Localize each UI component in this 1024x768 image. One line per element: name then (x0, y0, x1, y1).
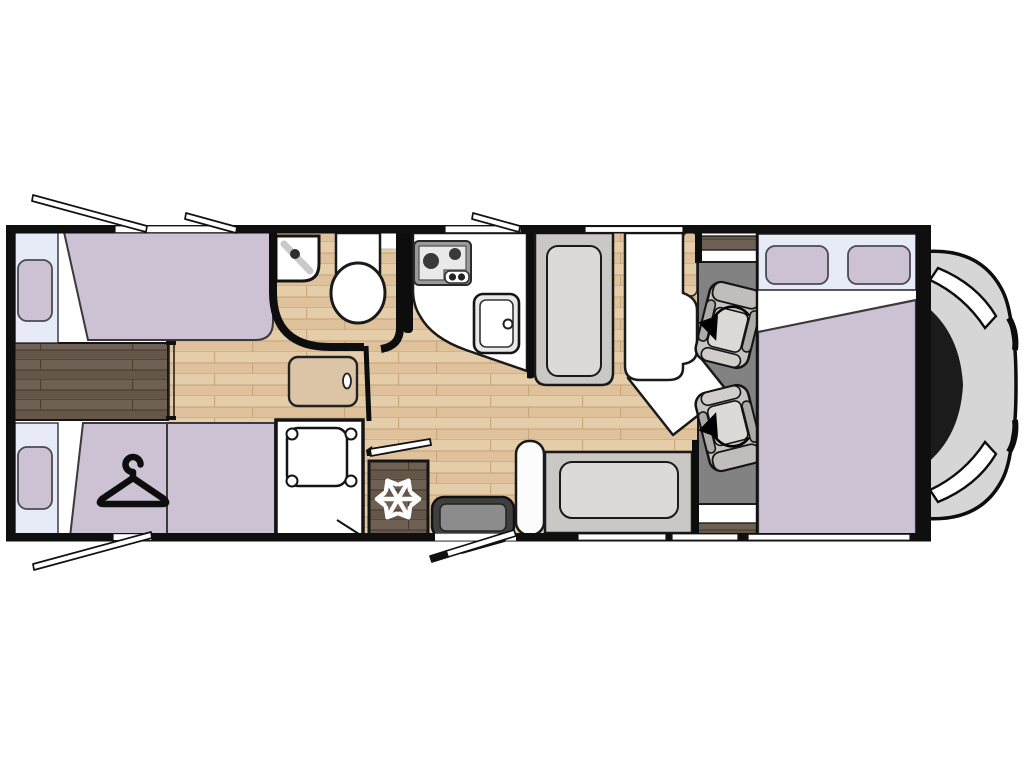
motorhome-floorplan (0, 0, 1024, 768)
wall-cab-bulkhead (916, 225, 931, 542)
toilet-bowl (331, 263, 385, 323)
window-opening (672, 534, 738, 540)
bench-cushion (560, 462, 678, 518)
table-side-panel (683, 232, 697, 296)
bench-armrest (516, 441, 544, 535)
entry-door-edge (430, 551, 448, 562)
bed-top (64, 232, 273, 340)
window-opening (585, 227, 683, 233)
pillow (18, 447, 52, 509)
overcab-zone (757, 233, 918, 535)
kitchen-hob (414, 241, 471, 285)
pillow (848, 246, 910, 284)
skirt-hatch (748, 534, 910, 540)
wall-rear (6, 225, 16, 542)
bathroom-door-open (366, 346, 369, 421)
pillow (18, 260, 52, 321)
cab-floor-strip (698, 236, 758, 250)
pillow (766, 246, 828, 284)
shower-tray (276, 420, 363, 537)
kitchen-wall-left (403, 228, 413, 333)
bench-cushion (547, 246, 601, 376)
sink-drain (290, 249, 300, 259)
bed-platform (12, 343, 168, 420)
kitchen-sink (474, 294, 519, 353)
entry-step-tread (440, 504, 506, 531)
bed-bottom (70, 423, 275, 537)
floorplan-stage (0, 0, 1024, 768)
wall-stub (692, 440, 699, 537)
burner-large (423, 253, 439, 269)
wall-stub (695, 232, 702, 263)
drop-down-bed (758, 300, 916, 535)
corridor-step-cabinet (289, 357, 357, 406)
sink-drain (504, 320, 513, 329)
cab-front (918, 251, 1016, 519)
cabinet-handle (343, 374, 351, 389)
window-opening (578, 534, 666, 540)
hob-controls (445, 271, 469, 283)
burner-small (449, 248, 461, 260)
